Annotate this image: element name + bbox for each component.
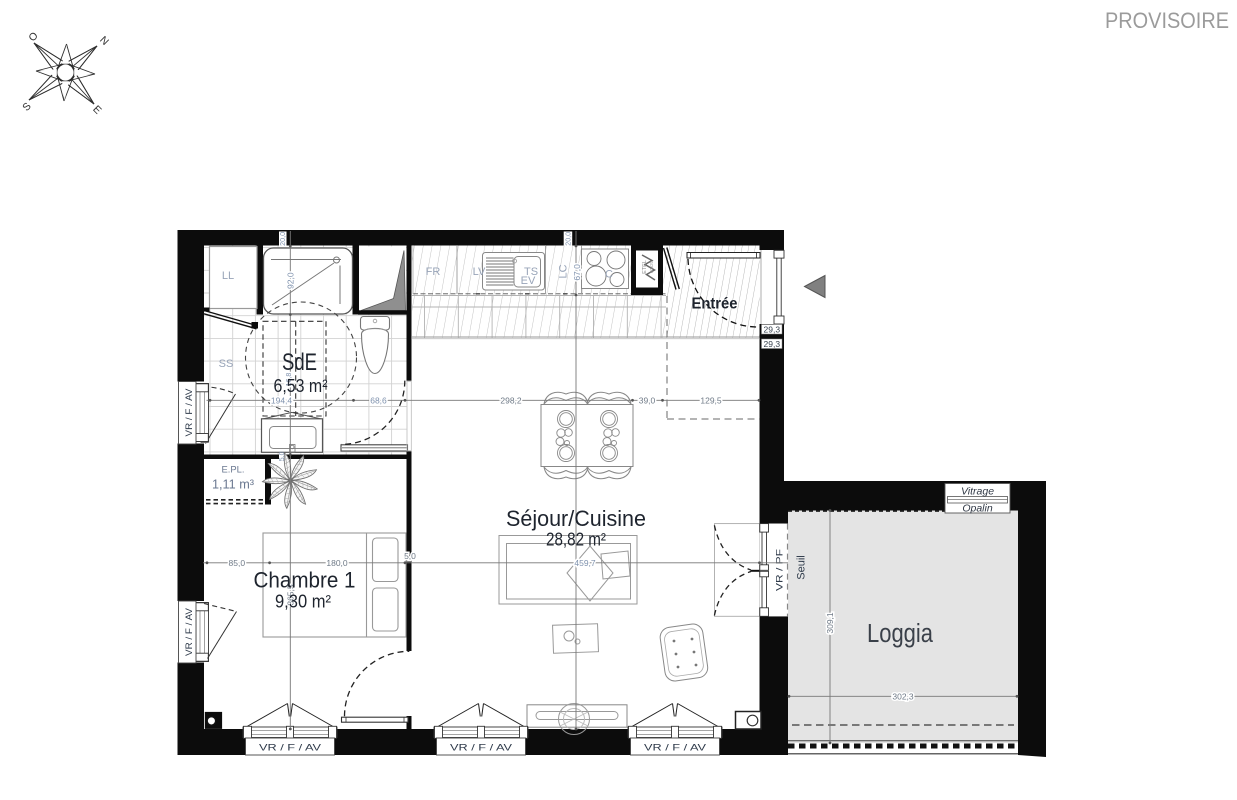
svg-text:E.PL.: E.PL. bbox=[222, 465, 245, 476]
svg-text:29,3: 29,3 bbox=[764, 324, 781, 334]
svg-text:VR / F / AV: VR / F / AV bbox=[184, 389, 194, 437]
svg-text:Seuil: Seuil bbox=[796, 555, 808, 579]
svg-text:85,0: 85,0 bbox=[229, 558, 246, 568]
svg-text:ETEL: ETEL bbox=[642, 260, 648, 274]
svg-text:6,53 m²: 6,53 m² bbox=[274, 376, 328, 396]
svg-text:EV: EV bbox=[521, 275, 536, 287]
svg-text:Entrée: Entrée bbox=[692, 296, 738, 313]
svg-text:VR / PF: VR / PF bbox=[775, 548, 785, 591]
svg-text:1,11 m³: 1,11 m³ bbox=[212, 478, 254, 492]
svg-text:180,0: 180,0 bbox=[326, 558, 348, 568]
svg-text:Vitrage: Vitrage bbox=[961, 486, 994, 498]
svg-text:Séjour/Cuisine: Séjour/Cuisine bbox=[506, 506, 646, 531]
svg-text:Loggia: Loggia bbox=[867, 620, 934, 648]
svg-text:29,3: 29,3 bbox=[764, 339, 781, 349]
svg-text:FR: FR bbox=[426, 266, 441, 278]
svg-text:68,6: 68,6 bbox=[370, 395, 387, 405]
svg-text:SdE: SdE bbox=[282, 349, 317, 376]
svg-text:5,0: 5,0 bbox=[279, 451, 286, 461]
svg-text:C: C bbox=[605, 269, 613, 281]
svg-text:309,1: 309,1 bbox=[825, 612, 835, 634]
svg-text:67,0: 67,0 bbox=[572, 264, 582, 281]
svg-text:92,0: 92,0 bbox=[285, 272, 295, 289]
svg-text:VR / F / AV: VR / F / AV bbox=[259, 743, 321, 753]
svg-text:PROVISOIRE: PROVISOIRE bbox=[1105, 8, 1229, 33]
svg-text:298,2: 298,2 bbox=[500, 395, 522, 405]
svg-text:129,5: 129,5 bbox=[700, 395, 722, 405]
svg-text:459,7: 459,7 bbox=[574, 558, 596, 568]
svg-text:VR / F / AV: VR / F / AV bbox=[184, 608, 194, 656]
svg-text:SS: SS bbox=[219, 358, 234, 370]
svg-text:LC: LC bbox=[558, 264, 570, 278]
svg-text:194,4: 194,4 bbox=[271, 395, 293, 405]
svg-text:20,0: 20,0 bbox=[278, 232, 287, 246]
svg-text:9,30 m²: 9,30 m² bbox=[275, 592, 331, 612]
svg-text:60x20: 60x20 bbox=[649, 260, 654, 273]
svg-text:Opalin: Opalin bbox=[962, 503, 993, 515]
svg-text:5,0: 5,0 bbox=[404, 551, 416, 561]
svg-text:LV: LV bbox=[473, 266, 486, 278]
svg-text:Chambre 1: Chambre 1 bbox=[254, 568, 356, 593]
svg-text:28,82 m²: 28,82 m² bbox=[546, 530, 606, 550]
svg-text:LL: LL bbox=[222, 270, 234, 282]
svg-text:39,0: 39,0 bbox=[639, 395, 656, 405]
svg-text:302,3: 302,3 bbox=[892, 691, 914, 701]
svg-text:20,0: 20,0 bbox=[563, 232, 572, 246]
